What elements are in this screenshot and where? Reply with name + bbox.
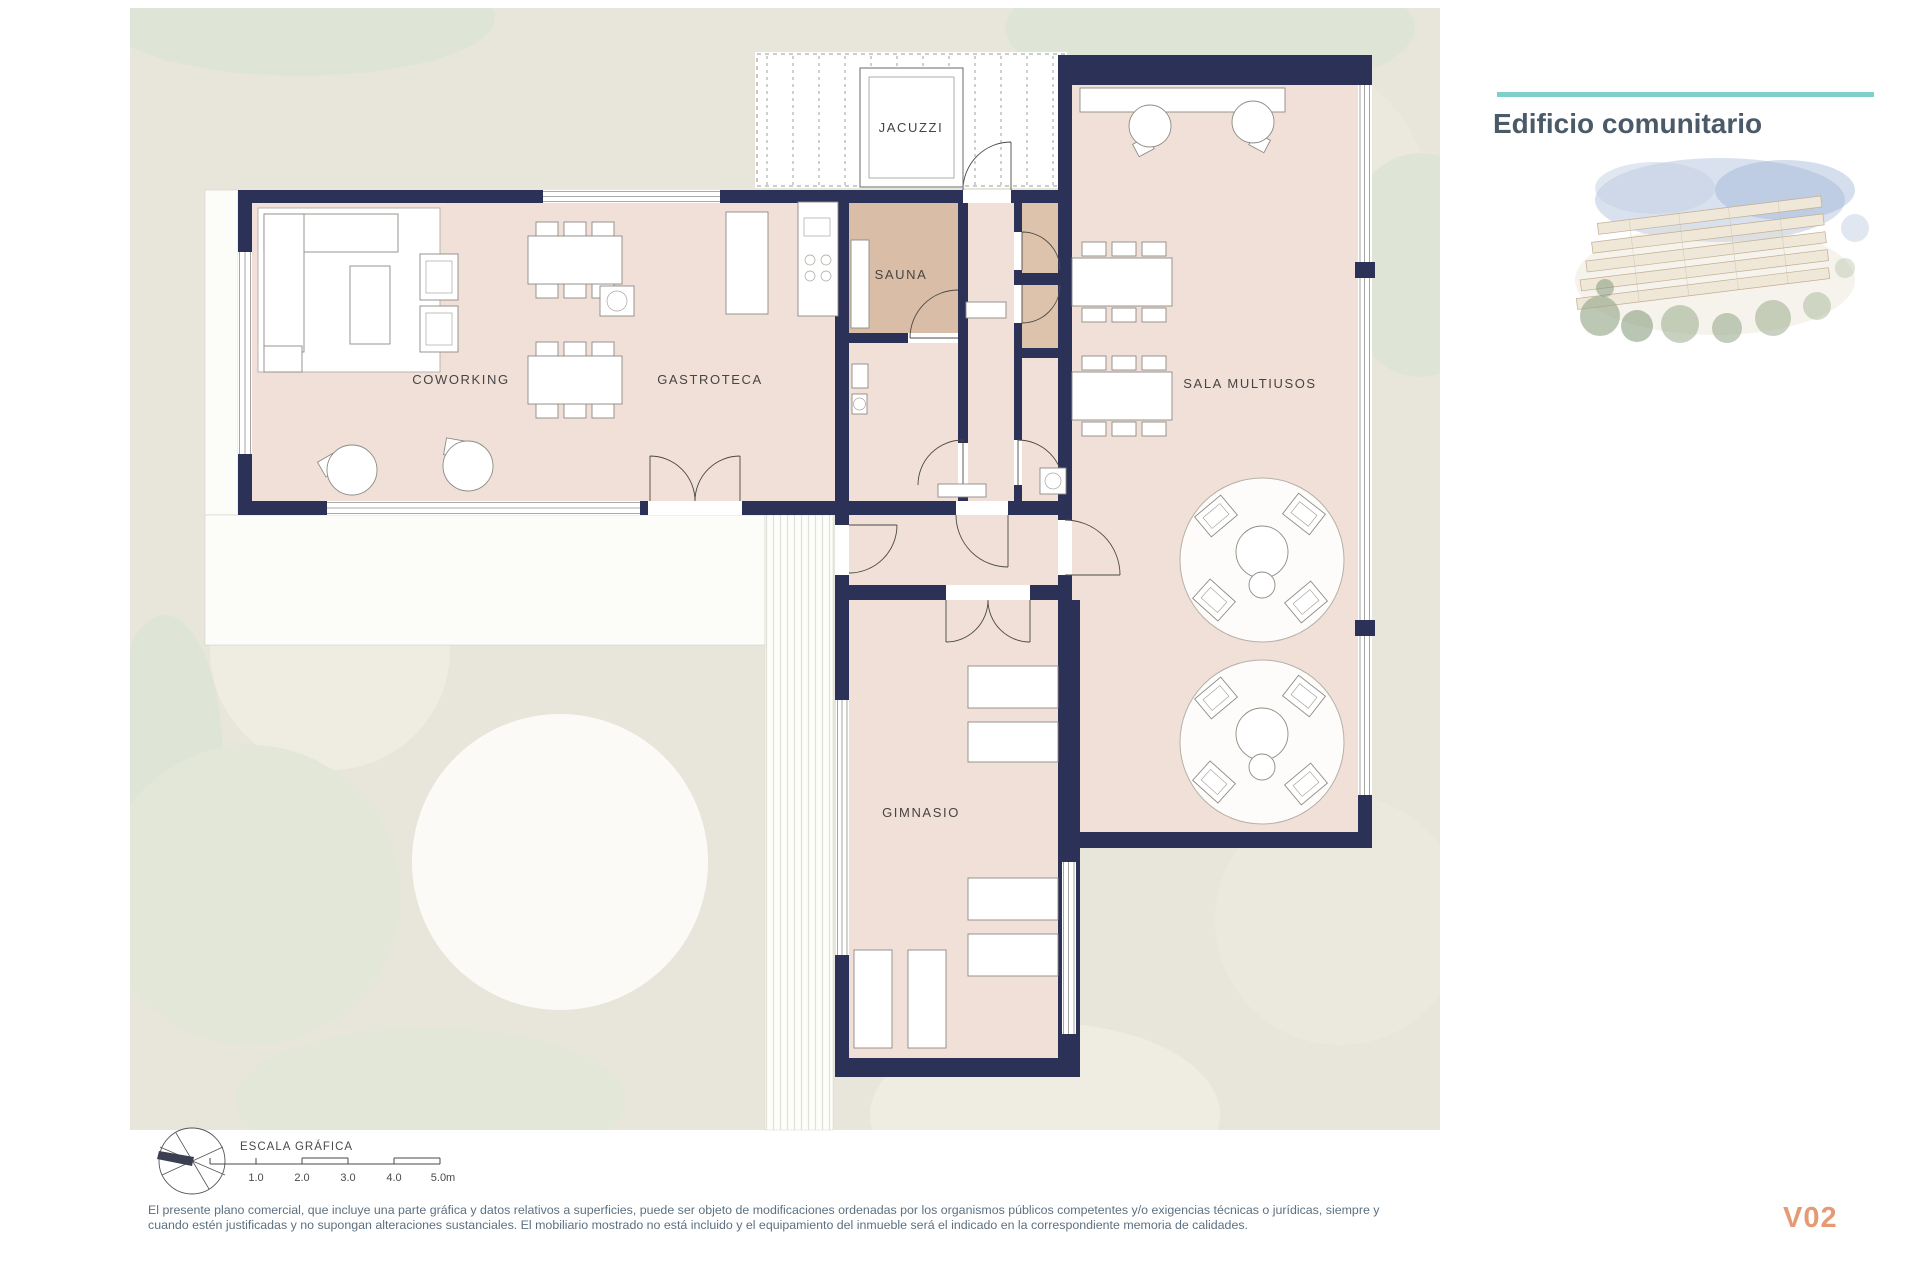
scale-tick: 3.0 bbox=[340, 1172, 355, 1184]
disclaimer: El presente plano comercial, que incluye… bbox=[148, 1203, 1379, 1232]
label-gimnasio: GIMNASIO bbox=[882, 805, 960, 820]
tree-circle bbox=[412, 714, 708, 1010]
terrace bbox=[205, 515, 765, 645]
scale-tick: 2.0 bbox=[294, 1172, 309, 1184]
compass-icon bbox=[157, 1128, 225, 1194]
building-illustration bbox=[1545, 148, 1875, 363]
accent-rule bbox=[1497, 92, 1874, 97]
scale-bar: ESCALA GRÁFICA 1.0 2.0 3.0 4.0 5.0m bbox=[157, 1128, 455, 1194]
scale-tick: 5.0m bbox=[431, 1172, 455, 1184]
label-gastroteca: GASTROTECA bbox=[657, 372, 763, 387]
label-sala-multiusos: SALA MULTIUSOS bbox=[1183, 376, 1316, 391]
path bbox=[765, 515, 833, 1130]
floor-vestibule bbox=[845, 506, 1072, 596]
label-sauna: SAUNA bbox=[875, 267, 928, 282]
label-jacuzzi: JACUZZI bbox=[879, 120, 944, 135]
scale-tick: 1.0 bbox=[248, 1172, 263, 1184]
scale-tick: 4.0 bbox=[386, 1172, 401, 1184]
version-badge: V02 bbox=[1783, 1202, 1838, 1235]
label-coworking: COWORKING bbox=[412, 372, 509, 387]
disclaimer-line-1: El presente plano comercial, que incluye… bbox=[148, 1203, 1379, 1218]
scale-bar-label: ESCALA GRÁFICA bbox=[240, 1140, 353, 1153]
plan-sheet: JACUZZI SAUNA COWORKING GASTROTECA SALA … bbox=[0, 0, 1920, 1280]
scale-ruler bbox=[210, 1158, 440, 1164]
page-title: Edificio comunitario bbox=[1493, 108, 1762, 140]
disclaimer-line-2: cuando estén justificadas y no supongan … bbox=[148, 1218, 1379, 1233]
